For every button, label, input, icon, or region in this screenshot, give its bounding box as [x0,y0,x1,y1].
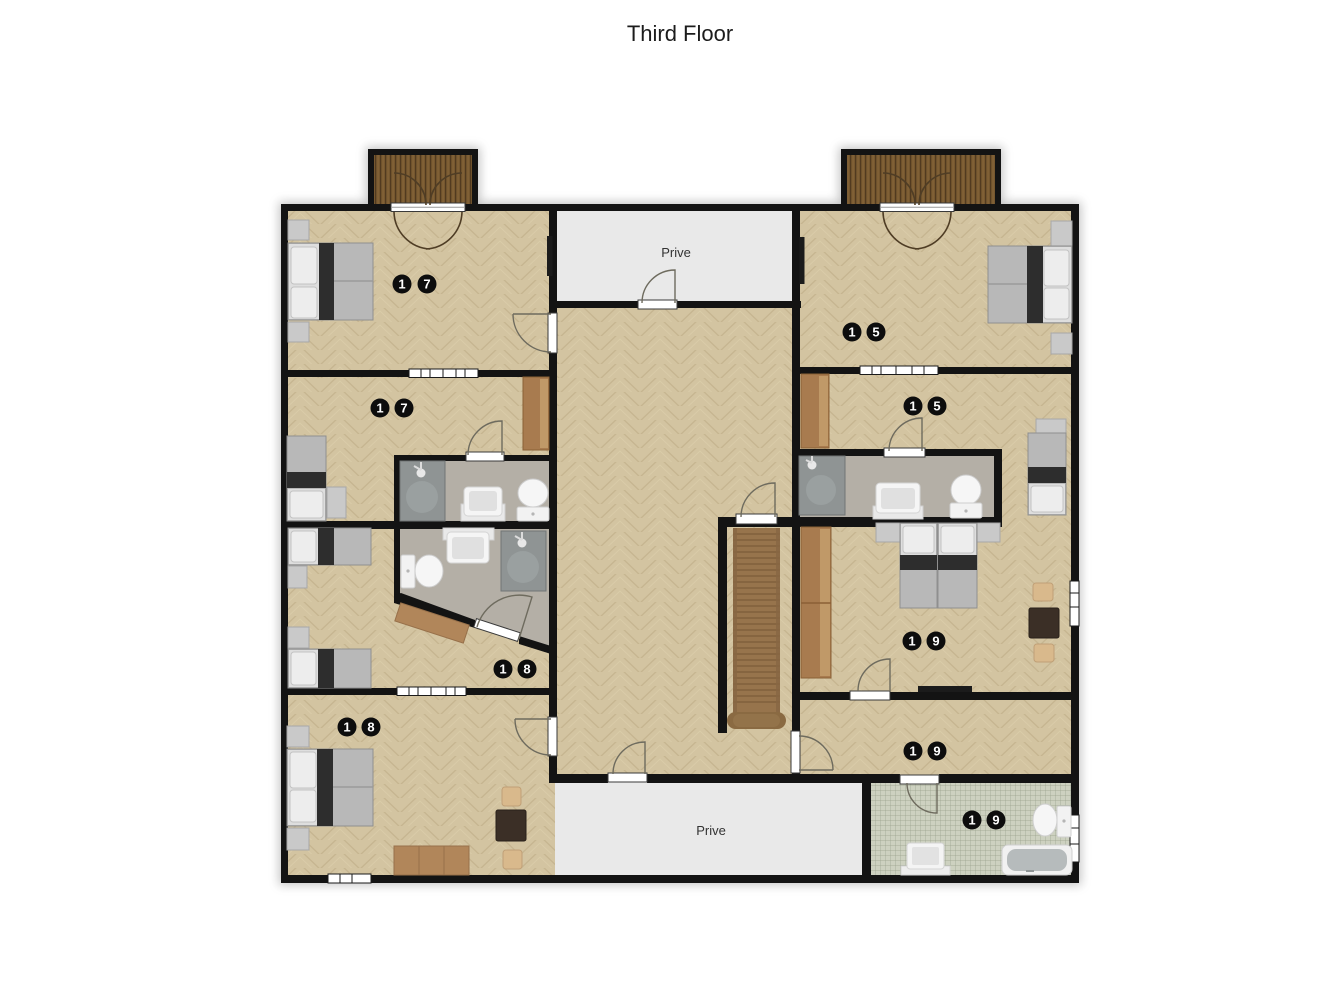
svg-text:1: 1 [499,662,506,677]
svg-text:5: 5 [872,325,879,340]
svg-text:9: 9 [932,634,939,649]
svg-text:1: 1 [968,813,975,828]
svg-text:1: 1 [908,634,915,649]
svg-text:8: 8 [523,662,530,677]
svg-text:7: 7 [423,277,430,292]
svg-text:Prive: Prive [696,823,726,838]
svg-text:Third Floor: Third Floor [627,21,733,46]
svg-text:1: 1 [376,401,383,416]
svg-text:9: 9 [933,744,940,759]
svg-text:8: 8 [367,720,374,735]
svg-text:Prive: Prive [661,245,691,260]
svg-text:1: 1 [909,399,916,414]
svg-text:1: 1 [909,744,916,759]
svg-text:5: 5 [933,399,940,414]
svg-text:9: 9 [992,813,999,828]
svg-text:1: 1 [398,277,405,292]
svg-text:7: 7 [400,401,407,416]
svg-text:1: 1 [848,325,855,340]
svg-text:1: 1 [343,720,350,735]
